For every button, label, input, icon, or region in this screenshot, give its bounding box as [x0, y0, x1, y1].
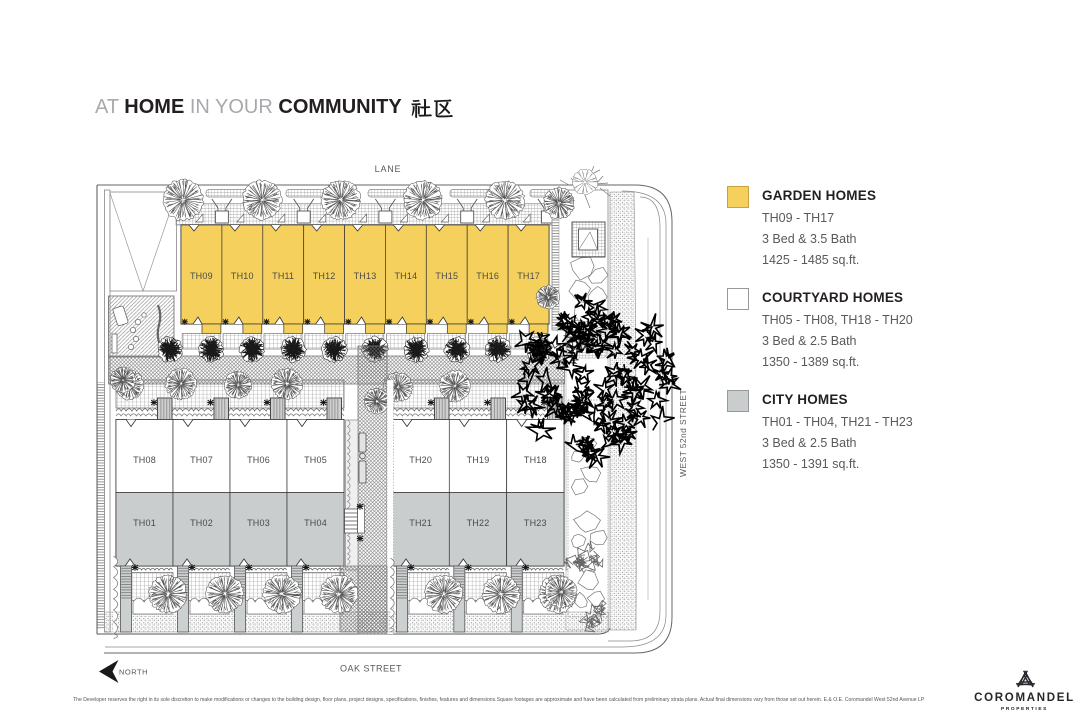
- svg-text:TH06: TH06: [247, 455, 270, 465]
- svg-text:TH04: TH04: [304, 518, 327, 528]
- svg-text:TH03: TH03: [247, 518, 270, 528]
- svg-text:TH12: TH12: [313, 271, 336, 281]
- svg-text:TH11: TH11: [272, 271, 294, 281]
- svg-text:TH20: TH20: [409, 455, 432, 465]
- svg-text:TH08: TH08: [133, 455, 156, 465]
- svg-text:TH23: TH23: [524, 518, 547, 528]
- svg-text:TH01: TH01: [133, 518, 156, 528]
- svg-text:WEST 52nd STREET: WEST 52nd STREET: [678, 389, 688, 477]
- svg-text:TH13: TH13: [354, 271, 377, 281]
- svg-text:TH07: TH07: [190, 455, 213, 465]
- svg-text:OAK STREET: OAK STREET: [340, 664, 402, 674]
- svg-text:TH05: TH05: [304, 455, 327, 465]
- svg-text:TH09: TH09: [190, 271, 213, 281]
- svg-text:TH18: TH18: [524, 455, 547, 465]
- svg-text:TH19: TH19: [467, 455, 490, 465]
- svg-text:TH02: TH02: [190, 518, 213, 528]
- svg-text:LANE: LANE: [375, 164, 402, 174]
- svg-text:NORTH: NORTH: [119, 668, 148, 677]
- svg-text:TH10: TH10: [231, 271, 254, 281]
- svg-text:TH22: TH22: [467, 518, 490, 528]
- svg-text:TH16: TH16: [476, 271, 499, 281]
- svg-text:TH21: TH21: [409, 518, 432, 528]
- svg-text:TH15: TH15: [435, 271, 458, 281]
- svg-text:TH14: TH14: [394, 271, 417, 281]
- svg-text:TH17: TH17: [517, 271, 540, 281]
